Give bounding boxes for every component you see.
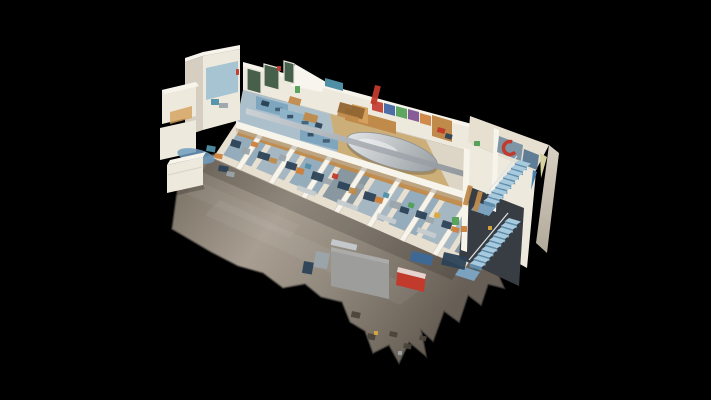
clutter-item: [474, 141, 480, 146]
clutter-item: [219, 103, 228, 108]
clutter-item: [295, 86, 300, 93]
clutter-item: [211, 99, 219, 105]
clutter-item: [461, 226, 467, 232]
blanket: [302, 121, 309, 125]
back-wall-windows: [284, 61, 294, 84]
clutter-item: [452, 217, 459, 225]
clutter-item: [313, 251, 330, 269]
dollhouse-3d-view[interactable]: [0, 0, 711, 400]
blanket: [323, 139, 330, 143]
clutter-item: [236, 69, 239, 75]
clutter-item: [302, 261, 314, 275]
clutter-item: [277, 66, 281, 71]
clutter-item: [374, 331, 378, 335]
blanket: [308, 133, 314, 137]
blanket: [287, 115, 293, 119]
clutter-item: [488, 226, 492, 230]
clutter-item: [398, 351, 402, 355]
back-wall-windows: [247, 68, 261, 94]
viewer-canvas: [0, 0, 711, 400]
back-wall-windows: [264, 64, 279, 90]
